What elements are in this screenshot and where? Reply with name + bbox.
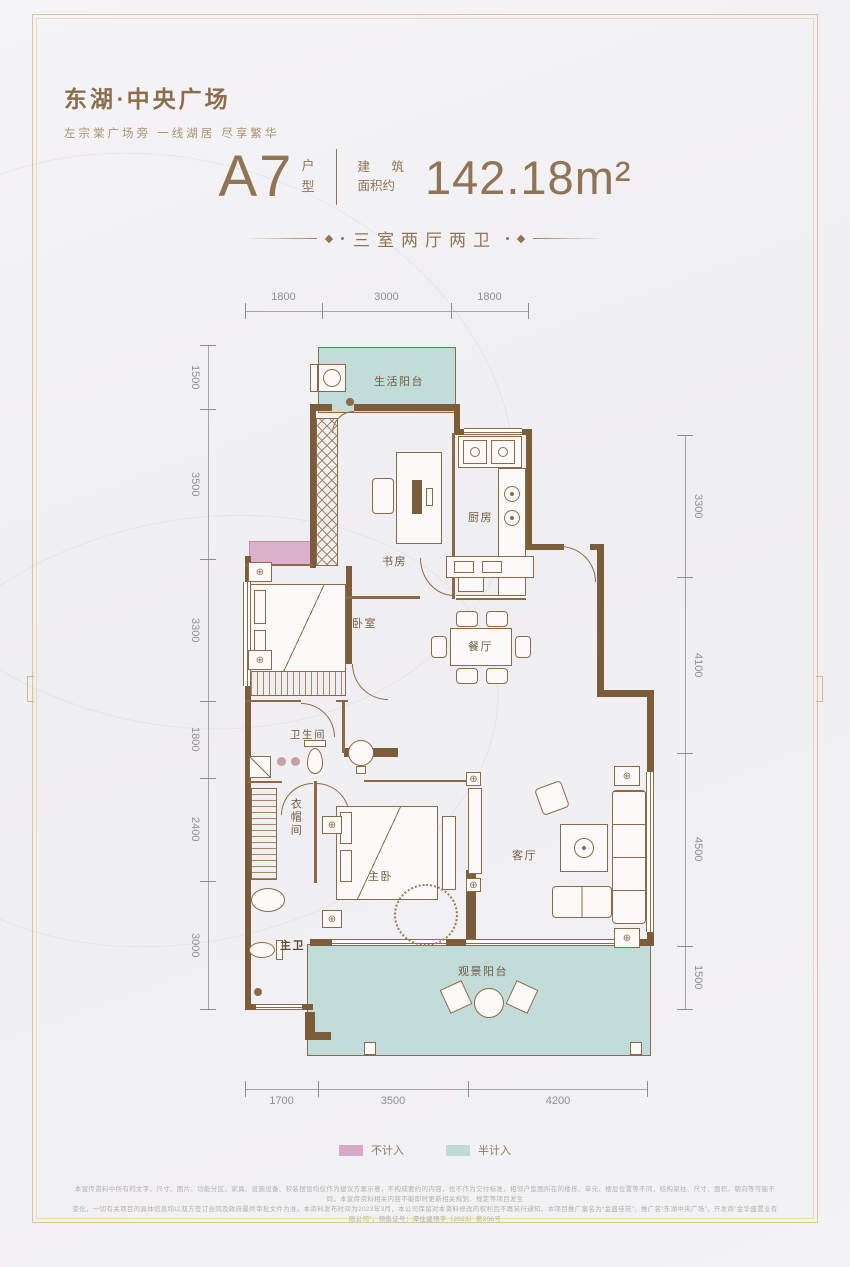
armchair-icon: [534, 780, 570, 816]
dim-tick: [200, 701, 216, 702]
dim-bottom-2: 3500: [318, 1095, 468, 1107]
burner-dot-icon: [510, 516, 514, 520]
cabinet-icon: [310, 364, 318, 392]
room-label-bedroom: 卧室: [352, 618, 377, 631]
dim-right-2: 4100: [692, 577, 704, 753]
area-label-line1: 建 筑: [357, 158, 412, 177]
room-label-dining: 餐厅: [468, 641, 493, 654]
dim-tick: [245, 303, 246, 319]
dim-bottom-3: 4200: [468, 1095, 648, 1107]
chair-icon: [486, 611, 508, 627]
chair-icon: [515, 636, 531, 658]
dim-tick: [200, 345, 216, 346]
room-label-cloakroom: 衣帽间: [288, 798, 301, 837]
wardrobe-icon: [251, 788, 277, 880]
window: [256, 1004, 302, 1010]
unit-name: A7: [219, 148, 294, 206]
dim-right-3: 4500: [692, 753, 704, 946]
table-dot-icon: [582, 846, 586, 850]
dim-left-5: 2400: [189, 778, 201, 881]
dim-top-3: 1800: [451, 291, 528, 303]
poster-page: 东湖·中央广场 左宗棠广场旁 一线湖居 尽享繁华 A7 户型 建 筑 面积约 1…: [0, 0, 850, 1267]
dim-tick: [200, 778, 216, 779]
dim-line-right: [685, 435, 686, 1010]
dim-tick: [677, 946, 693, 947]
room-label-kitchen: 厨房: [468, 512, 493, 525]
dim-tick: [200, 409, 216, 410]
pillow-icon: [254, 590, 266, 624]
area-value: 142.18m²: [425, 154, 632, 201]
dim-bottom-1: 1700: [245, 1095, 318, 1107]
sink-pedestal-icon: [356, 766, 366, 774]
round-rug-icon: [394, 884, 458, 946]
title-divider: [336, 149, 337, 205]
dim-tick: [677, 1009, 693, 1010]
disclaimer-line2: 变化，一切有关项目的具体信息均以双方签订合同及政府最终审批文件为准。本资料发布时…: [70, 1205, 780, 1225]
legend-swatch-teal: [446, 1145, 470, 1156]
wall-segment: [354, 404, 460, 411]
shower-corner-icon: [249, 756, 271, 778]
dim-left-1: 1500: [189, 345, 201, 409]
layout-text: 三室两厅两卫: [353, 226, 497, 251]
chair-icon: [456, 611, 478, 627]
room-label-master-bath: 主卫: [280, 940, 305, 953]
dim-tick: [528, 303, 529, 319]
legend-swatch-pink: [339, 1145, 363, 1156]
area-label: 建 筑 面积约: [357, 158, 412, 197]
wall-segment: [526, 544, 564, 550]
shower-drain-icon: [254, 988, 262, 996]
sink-drain-icon: [470, 447, 480, 457]
room-label-living-room: 客厅: [512, 850, 537, 863]
end-table-icon: ⊕: [614, 766, 640, 786]
dim-tick: [200, 881, 216, 882]
dot-icon: [506, 237, 509, 240]
dim-left-4: 1800: [189, 701, 201, 778]
disclaimer-line1: 本宣传资料中所有的文字、尺寸、图片、功能分区、家具、设施设备、软装摆设均仅作为建…: [70, 1185, 780, 1205]
layout-subtitle: 三室两厅两卫: [0, 226, 850, 251]
wall-segment: [597, 690, 654, 697]
legend-item-not-counted: 不计入: [339, 1142, 404, 1158]
brand-block: 东湖·中央广场 左宗棠广场旁 一线湖居 尽享繁华: [64, 80, 279, 141]
room-label-service-balcony: 生活阳台: [374, 376, 424, 389]
patio-table-icon: [474, 988, 504, 1018]
wall-segment: [310, 404, 332, 411]
washer-hookup-icon: [277, 757, 286, 766]
dim-top-2: 3000: [322, 291, 451, 303]
legend-label: 不计入: [371, 1142, 404, 1158]
room-label-master-bedroom: 主卧: [368, 871, 393, 884]
disclaimer: 本宣传资料中所有的文字、尺寸、图片、功能分区、家具、设施设备、软装摆设均仅作为建…: [70, 1185, 780, 1225]
bench-icon: [442, 816, 456, 890]
room-label-bathroom: 卫生间: [290, 729, 326, 742]
diamond-icon: [325, 234, 333, 242]
burner-dot-icon: [510, 492, 514, 496]
dim-top-1: 1800: [245, 291, 322, 303]
chair-icon: [372, 478, 394, 514]
dim-left-3: 3300: [189, 559, 201, 701]
wall-segment: [346, 566, 352, 664]
wall-segment: [310, 939, 334, 946]
dim-tick: [200, 559, 216, 560]
end-table-icon: ⊕: [614, 928, 640, 948]
loveseat-icon: [552, 886, 612, 918]
wardrobe-icon: [250, 670, 346, 696]
partition: [342, 701, 345, 753]
toilet-icon: [307, 748, 323, 774]
dim-line-left: [208, 345, 209, 1010]
wall-segment: [597, 544, 604, 697]
diamond-icon: [517, 234, 525, 242]
room-label-study: 书房: [382, 556, 407, 569]
dim-line-top: [245, 311, 529, 312]
subtitle-line: [533, 238, 605, 239]
railing-post-icon: [364, 1042, 376, 1055]
chair-icon: [486, 668, 508, 684]
washing-machine-drum-icon: [323, 369, 341, 387]
wall-segment: [245, 901, 251, 1010]
dim-tick: [677, 753, 693, 754]
window: [466, 939, 636, 946]
brand-tagline: 左宗棠广场旁 一线湖居 尽享繁华: [64, 125, 279, 141]
dim-line-bottom: [245, 1089, 648, 1090]
nightstand-icon: ⊕: [248, 562, 272, 582]
wall-segment: [526, 429, 532, 550]
partition: [245, 700, 301, 702]
nightstand-icon: ⊕: [248, 650, 272, 670]
column-icon: ⊕: [466, 878, 481, 892]
subtitle-line: [245, 238, 317, 239]
washer-hookup-icon: [291, 757, 300, 766]
room-label-view-balcony: 观景阳台: [458, 966, 508, 979]
sideboard-door-icon: [454, 561, 474, 573]
toilet-icon: [249, 942, 275, 958]
nightstand-icon: ⊕: [322, 910, 342, 928]
column-icon: ⊕: [466, 772, 481, 786]
unit-titlebar: A7 户型 建 筑 面积约 142.18m²: [0, 148, 850, 206]
legend-item-half-counted: 半计入: [446, 1142, 511, 1158]
dim-left-6: 3000: [189, 881, 201, 1009]
vanity-sink-icon: [251, 888, 285, 912]
tv-console-icon: [468, 788, 482, 874]
chair-icon: [456, 668, 478, 684]
dot-icon: [341, 237, 344, 240]
sofa-icon: [612, 790, 646, 924]
railing-post-icon: [630, 1042, 642, 1055]
pillow-icon: [340, 850, 352, 882]
partition: [364, 780, 476, 782]
dim-tick: [322, 303, 323, 319]
dim-tick: [451, 303, 452, 319]
dim-right-4: 1500: [692, 946, 704, 1009]
dim-tick: [677, 435, 693, 436]
legend: 不计入 半计入: [0, 1142, 850, 1158]
brand-logo: 东湖·中央广场: [64, 80, 279, 114]
right-edge-ornament: [816, 676, 823, 702]
wall-segment: [305, 1032, 331, 1040]
dim-right-1: 3300: [692, 435, 704, 577]
sideboard-door-icon: [482, 561, 502, 573]
floor-drain-icon: [346, 398, 354, 406]
pedestal-sink-icon: [348, 740, 374, 766]
window: [464, 428, 522, 435]
dim-tick: [200, 1009, 216, 1010]
door-arc: [560, 546, 596, 582]
sink-drain-icon: [498, 447, 508, 457]
monitor-icon: [412, 480, 422, 514]
chair-icon: [431, 636, 447, 658]
area-label-line2: 面积约: [357, 177, 412, 196]
dim-left-2: 3500: [189, 409, 201, 559]
desk-accessory-icon: [426, 488, 433, 506]
legend-label: 半计入: [478, 1142, 511, 1158]
nightstand-icon: ⊕: [322, 816, 342, 834]
partition: [248, 781, 282, 783]
dim-tick: [677, 577, 693, 578]
unit-type-label: 户型: [301, 156, 316, 198]
window: [646, 772, 654, 932]
shaft-hatch: [316, 418, 338, 566]
